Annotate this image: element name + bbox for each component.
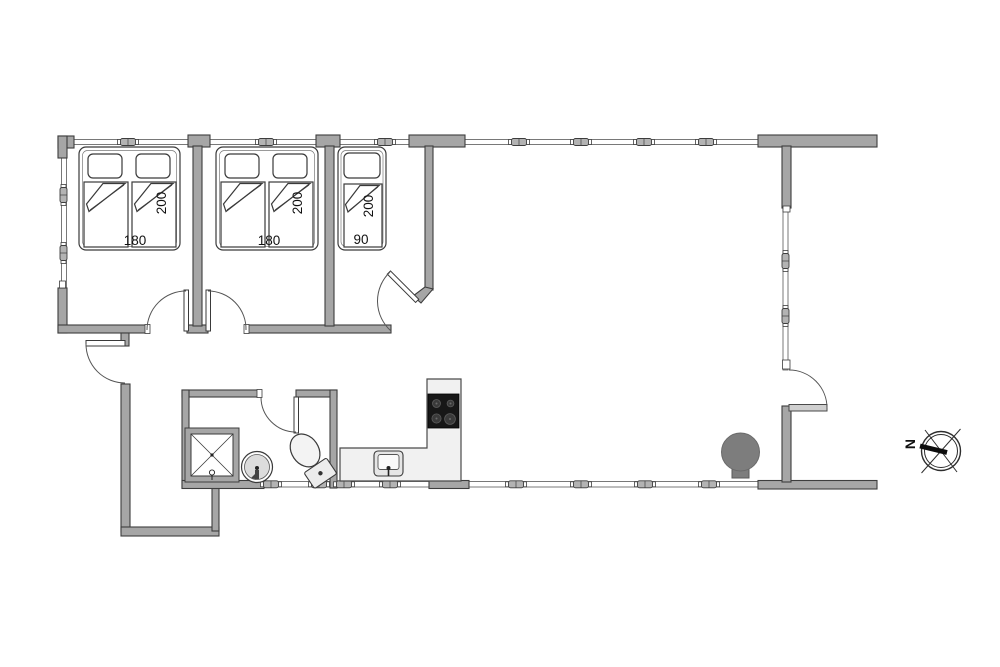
cooktop-icon: [428, 394, 459, 428]
door-entrance: [86, 341, 125, 384]
window-mullion-icon: [571, 481, 592, 488]
shower-drain: [210, 453, 213, 456]
bed-width-label: 90: [353, 232, 368, 247]
door-bedroom-1: [145, 290, 189, 334]
wall-entrance-west: [121, 384, 130, 532]
door-bathroom: [257, 390, 299, 434]
wall-corner-nw-v: [58, 136, 67, 158]
wall-partition-bed1-2: [193, 146, 202, 326]
window-mullion-icon: [380, 481, 401, 488]
wall-east-lower: [782, 406, 791, 482]
window-mullion-icon: [375, 139, 396, 146]
shower-icon: [185, 428, 239, 482]
window-mullion-icon: [509, 139, 530, 146]
burner-dot: [436, 403, 438, 405]
wall-bath-north-a: [182, 390, 261, 397]
door-terrace: [789, 370, 827, 411]
door-swing-arc: [86, 344, 125, 383]
door-swing-arc: [378, 272, 391, 331]
wall-partition-bed2-3: [325, 146, 334, 326]
compass-north-label: N: [902, 439, 918, 449]
toilet-icon: [284, 428, 337, 488]
window-mullion-icon: [256, 139, 277, 146]
wall-cap: [60, 281, 66, 288]
window-mullion-icon: [635, 481, 656, 488]
shower-valve: [209, 470, 214, 475]
kitchen: [340, 379, 461, 481]
glazed-wall-east: [783, 206, 788, 370]
door-leaf: [206, 290, 211, 331]
door-leaf: [294, 397, 299, 433]
wall-cap: [783, 360, 791, 369]
door-bedroom-3: [378, 271, 419, 331]
kitchen-sink-icon: [374, 451, 403, 476]
wall-north-terrace: [758, 135, 877, 147]
wall-bedroom-south-a: [58, 325, 149, 333]
wall-cap: [783, 206, 790, 212]
pillow: [273, 154, 307, 178]
burner-dot: [450, 403, 452, 405]
wall-south-kitchen-post: [429, 481, 469, 489]
window-mullion-icon: [699, 481, 720, 488]
basin-plug: [255, 466, 259, 470]
bed-width-label: 180: [258, 233, 281, 248]
window-mullion-icon: [334, 481, 355, 488]
door-swing-arc: [147, 291, 186, 330]
wall-bedroom-south-c: [245, 325, 391, 333]
basin-tap: [255, 470, 259, 479]
pillow: [88, 154, 122, 178]
door-leaf: [86, 341, 125, 347]
window-mullion-icon: [696, 139, 717, 146]
washbasin-icon: [242, 452, 273, 483]
bed-length-label: 200: [154, 192, 169, 215]
bathroom: [185, 428, 337, 489]
cooktop-surface: [428, 394, 459, 428]
burner-dot: [436, 418, 438, 420]
bed-length-label: 200: [361, 195, 376, 218]
wall-junction-bed2-3: [316, 135, 340, 147]
wall-entrance-east-stub: [212, 486, 219, 531]
bed-length-label: 200: [290, 192, 305, 215]
door-bedroom-2: [206, 290, 249, 334]
wall-south-terrace: [758, 481, 877, 490]
wall-junction-bed3: [409, 135, 465, 147]
wood-stove-body: [722, 433, 760, 471]
wall-entrance-south: [121, 527, 219, 536]
window-mullion-icon: [782, 306, 789, 327]
bed-width-label: 180: [124, 233, 147, 248]
glazed-wall-north: [62, 140, 876, 145]
door-swing-arc: [208, 291, 246, 330]
door-leaf: [184, 290, 189, 331]
window-mullion-icon: [60, 243, 67, 264]
window-mullion-icon: [782, 251, 789, 272]
door-leaf: [387, 271, 418, 302]
wood-stove-icon: [722, 433, 760, 478]
pillow: [225, 154, 259, 178]
door-swing-arc: [789, 370, 827, 408]
bedroom-3: 90 200: [338, 147, 386, 250]
solid-walls: [58, 135, 877, 536]
wall-junction-bed1-2: [188, 135, 210, 147]
window-mullion-icon: [634, 139, 655, 146]
window-mullion-icon: [60, 185, 67, 206]
glazed-wall-south: [218, 482, 765, 488]
floor-plan-page: 180 200 180 200 90 200: [0, 0, 1000, 667]
door-leaf: [789, 405, 827, 412]
window-mullion-icon: [261, 481, 282, 488]
floor-plan-svg: 180 200 180 200 90 200: [0, 0, 1000, 667]
pillow: [136, 154, 170, 178]
burner-dot: [449, 418, 451, 420]
bedroom-1: 180 200: [79, 147, 180, 250]
window-mullion-icon: [506, 481, 527, 488]
door-swing-arc: [261, 397, 296, 432]
wall-east-upper: [782, 146, 791, 208]
wall-bed3-east: [425, 146, 433, 290]
window-mullion-icon: [571, 139, 592, 146]
door-jamb: [257, 390, 262, 398]
window-mullion-icon: [118, 139, 139, 146]
compass-icon: N: [902, 429, 961, 473]
bedroom-2: 180 200: [216, 147, 318, 250]
pillow: [344, 153, 380, 178]
